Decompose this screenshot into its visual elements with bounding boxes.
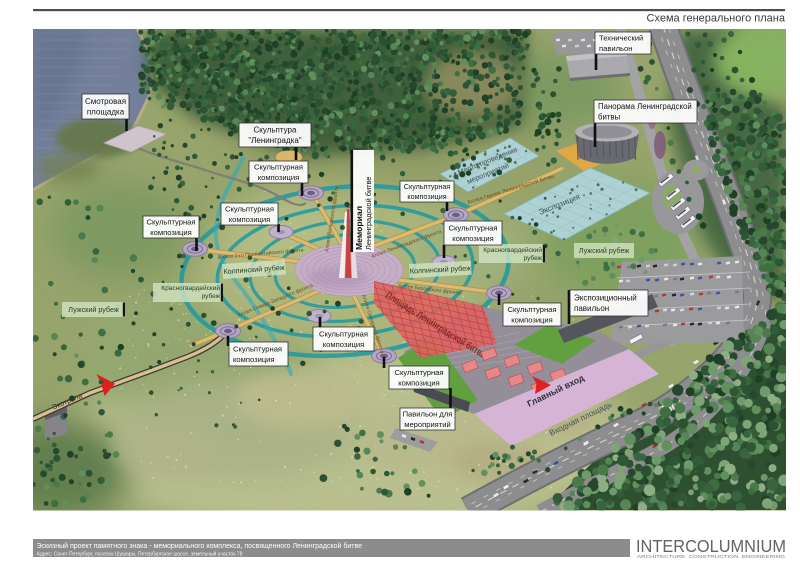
svg-text:Смотровая: Смотровая [85,97,126,106]
svg-text:композиция: композиция [323,340,365,349]
svg-text:Скульптурная: Скульптурная [319,330,368,339]
svg-text:Схема генерального плана: Схема генерального плана [647,13,786,25]
svg-text:композиция: композиция [452,234,494,243]
svg-text:Эскизный проект памятного знак: Эскизный проект памятного знака - мемори… [37,542,363,550]
svg-text:ARCHITECTURE CONSTRUCTION EN: ARCHITECTURE CONSTRUCTION ENGINEERING [637,554,786,559]
svg-text:Экспозиционный: Экспозиционный [574,294,637,303]
svg-text:Мемориал: Мемориал [354,206,364,250]
svg-text:INTERCOLUMNIUM: INTERCOLUMNIUM [636,536,786,556]
svg-text:Лужский рубеж: Лужский рубеж [579,246,630,255]
svg-text:Скульптурная: Скульптурная [254,163,303,172]
svg-text:Скульптурная: Скульптурная [404,182,451,191]
svg-text:композиция: композиция [233,355,275,364]
svg-text:Скульптурная: Скульптурная [225,205,274,214]
svg-text:Павильон для: Павильон для [403,410,453,419]
svg-text:рубеж: рубеж [524,254,543,262]
svg-text:Скульптурная: Скульптурная [233,345,282,354]
svg-text:Скульптурная: Скульптурная [448,224,497,233]
svg-text:павильон: павильон [574,304,609,313]
svg-text:композиция: композиция [398,378,440,387]
svg-text:композиция: композиция [407,192,446,201]
svg-text:Скульптурная: Скульптурная [146,218,195,227]
svg-text:композиция: композиция [150,228,192,237]
svg-text:павильон: павильон [599,44,632,53]
svg-text:мероприятий: мероприятий [404,420,451,429]
svg-text:рубеж: рубеж [202,292,221,300]
svg-text:композиция: композиция [229,215,271,224]
svg-text:Красногвардейский: Красногвардейский [483,246,542,254]
svg-text:Скульптура: Скульптура [254,126,297,135]
svg-text:композиция: композиция [258,173,300,182]
svg-text:Панорама Ленинградской: Панорама Ленинградской [598,102,692,111]
svg-text:"Ленинградка": "Ленинградка" [248,136,301,145]
svg-text:Ленинградской битве: Ленинградской битве [364,177,373,250]
svg-text:площадка: площадка [87,108,125,117]
svg-text:Технический: Технический [599,34,643,43]
svg-text:Скульптурная: Скульптурная [507,305,556,314]
svg-text:битвы: битвы [598,113,621,122]
svg-text:Адрес: Санкт-Петербург, посело: Адрес: Санкт-Петербург, поселок Шушары, … [37,551,243,558]
svg-text:Скульптурная: Скульптурная [394,368,443,377]
svg-text:композиция: композиция [511,315,553,324]
svg-text:Лужский рубеж: Лужский рубеж [68,305,119,314]
svg-text:Красногвардейский: Красногвардейский [161,284,220,292]
